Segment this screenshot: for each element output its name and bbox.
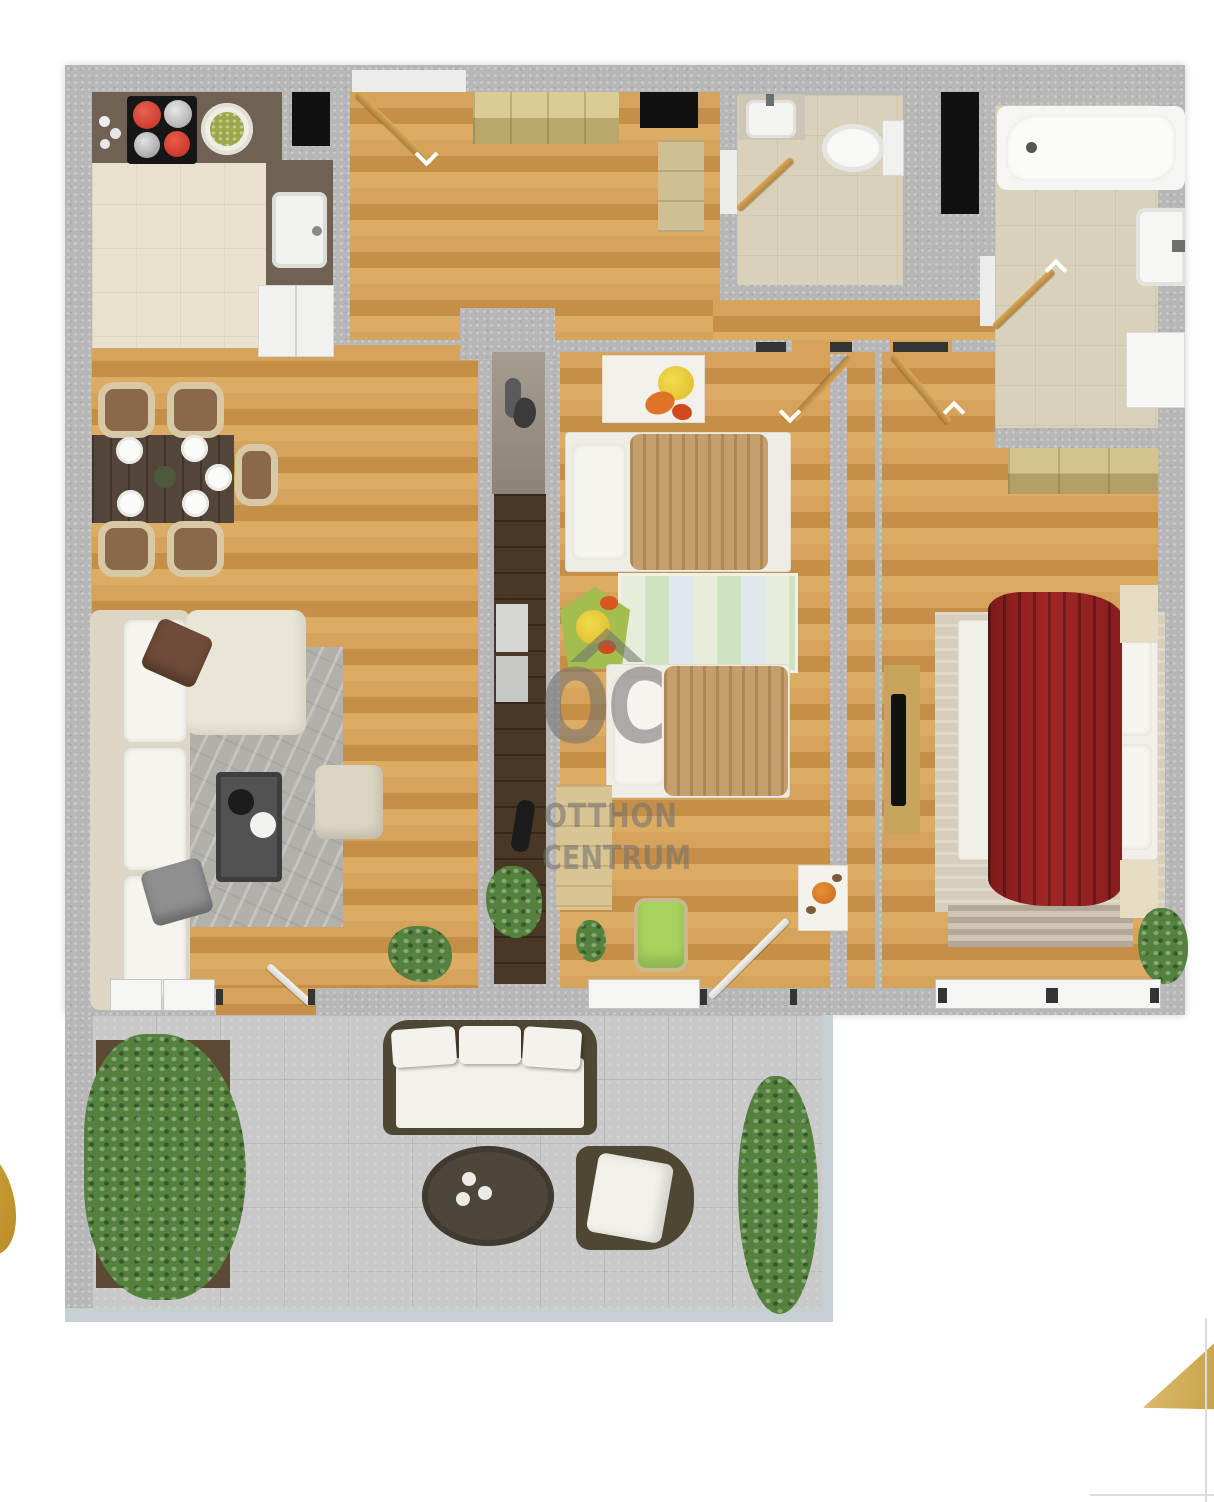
fruit [832,874,842,882]
toilet-bowl [822,124,884,172]
sink-faucet [312,226,322,236]
plate [181,435,208,462]
window [110,979,162,1011]
cup [478,1186,492,1200]
outdoor-pillow [391,1026,457,1068]
hall-cabinet [658,140,704,232]
cup [456,1192,470,1206]
wc-threshold [720,150,737,214]
door-jamb [216,989,223,1005]
door-jamb [790,989,797,1005]
terrace-railing-right [822,1015,833,1322]
wc-tap [766,94,774,106]
tv [891,694,906,806]
window [588,979,700,1009]
window-handle [1150,988,1159,1003]
outdoor-sofa-seat [396,1058,584,1128]
sofa-chaise [186,610,306,735]
plate [182,490,209,517]
fridge-seam [295,285,297,357]
page-edge-right [1205,1318,1207,1502]
black-tray [228,789,254,815]
red-blanket-folds [988,592,1122,906]
plate [117,490,144,517]
garlic [100,139,110,149]
salad [210,112,244,146]
watermark-logo: OC [541,648,664,767]
bathroom-threshold [980,256,995,326]
green-chair [634,898,688,972]
hall-wardrobe-seams [473,92,619,144]
pot-red-1 [133,101,161,129]
kids-pillow [572,444,626,560]
floorplan-image: OC OTTHON CENTRUM [0,0,1214,1502]
door-shadow [756,342,786,352]
watermark-line1: OTTHON [544,796,678,835]
window-handle [938,988,947,1003]
pot-silver-2 [134,132,160,158]
cup [462,1172,476,1186]
window-handle [1046,988,1058,1003]
bathtub-drain [1026,142,1037,153]
toilet-tank [882,120,904,176]
door-shadow [893,342,948,352]
wardrobe-panel [496,656,528,702]
garlic [110,128,121,139]
bath-tap [1172,240,1185,252]
plate [116,437,143,464]
dining-chair [98,382,155,438]
hall-shaft [640,92,698,128]
kids-blanket [664,666,788,796]
kitchen-floor [92,160,268,348]
window [163,979,215,1011]
terrace-railing-bottom [65,1308,833,1322]
bedroom-wardrobe-seams [1008,448,1158,494]
dining-chair [235,444,278,506]
inner-hallway-floor [713,300,995,340]
pot-red-2 [164,131,190,157]
door-jamb [700,989,707,1005]
outdoor-pillow [522,1026,583,1070]
sofa-cushion [124,748,186,870]
door-shadow [830,342,852,352]
plate [205,464,232,491]
center-bowl [154,466,176,488]
kitchen-shaft [292,92,330,146]
dining-chair [167,382,224,438]
outdoor-pillow [459,1026,521,1064]
bathroom-shaft [941,92,979,214]
plant [1138,908,1188,984]
dining-chair [98,521,155,577]
kids-blanket [630,434,768,570]
gold-leaf-accent [0,1140,26,1261]
washing-machine [1126,332,1185,408]
nightstand [1120,585,1158,643]
pouf [315,765,383,839]
wardrobe-panel [496,604,528,652]
outdoor-armchair-cushion [586,1152,675,1244]
page-edge-bottom [1090,1494,1214,1496]
pot-silver-1 [164,100,192,128]
corridor-floor [847,352,875,988]
door-jamb [308,989,315,1005]
gold-triangle-accent [1143,1342,1214,1412]
garlic [99,116,110,127]
white-tray [250,812,276,838]
entrance-threshold [352,70,466,92]
plant [576,920,606,962]
fruit [806,906,816,914]
dining-chair [167,521,224,577]
hedge [738,1076,818,1314]
rug-fringe [948,905,1133,947]
fruit-bowl [812,882,836,904]
watermark-line2: CENTRUM [542,838,691,877]
duck-toy-orange [600,596,618,610]
